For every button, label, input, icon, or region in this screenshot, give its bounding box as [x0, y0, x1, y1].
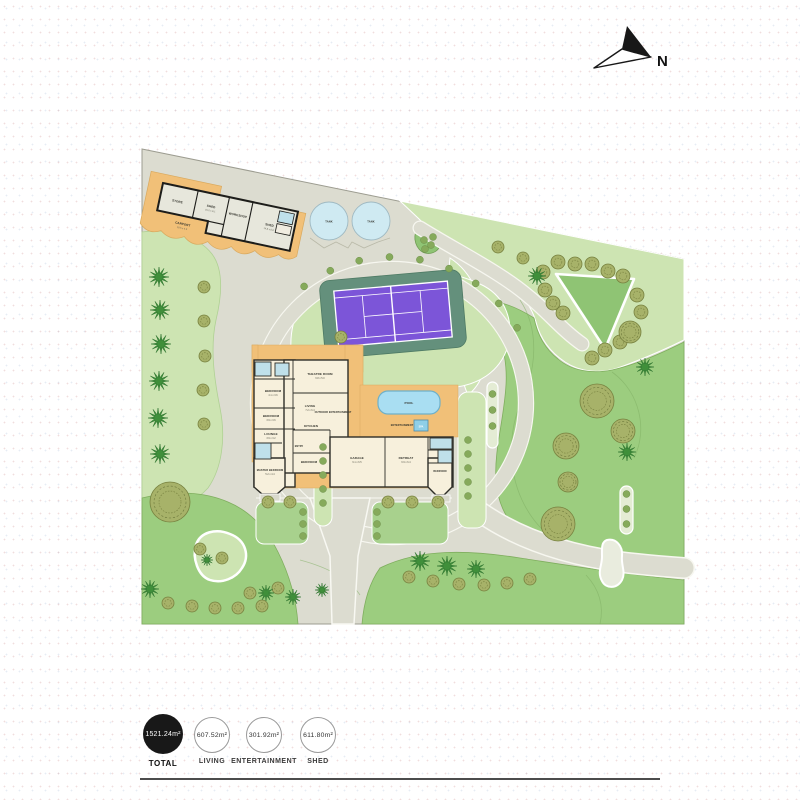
room-label: LOUNGE [264, 432, 277, 436]
tree-icon [619, 321, 641, 343]
tree-icon [335, 331, 347, 343]
north-label: N [657, 53, 668, 70]
shrub-icon [300, 521, 307, 528]
tree-icon [553, 433, 579, 459]
site-plan: STORE SHED 15.2 x 8.1 WORKSHOP SHED 14.8… [0, 0, 800, 800]
room-label: MASTER BEDROOM [257, 468, 284, 472]
tree-icon [209, 602, 221, 614]
shrub-icon [623, 491, 630, 498]
tree-icon [382, 496, 394, 508]
room-label: BEDROOM [433, 470, 446, 473]
room-label: BEDROOM [301, 460, 318, 464]
deck-label: OUTDOOR ENTERTAINMENT [315, 411, 352, 414]
tree-icon [186, 600, 198, 612]
tree-icon [244, 587, 256, 599]
deck-label: ENTERTAINMENT [391, 424, 414, 427]
tree-icon [585, 351, 599, 365]
room-label: LIVING [305, 404, 316, 408]
tree-icon [538, 283, 552, 297]
room-dims: 3.9 x 3.2 [266, 437, 276, 440]
tree-icon [256, 600, 268, 612]
room-label: THEATRE ROOM [307, 372, 333, 376]
tree-icon [262, 496, 274, 508]
shrub-icon [374, 509, 381, 516]
tree-icon [558, 472, 578, 492]
tree-icon [568, 257, 582, 271]
shrub-icon [320, 458, 327, 465]
shrub-icon [489, 407, 496, 414]
shrub-icon [465, 451, 472, 458]
shrub-icon [374, 521, 381, 528]
shrub-icon [489, 391, 496, 398]
shrub-icon [446, 265, 453, 272]
shrub-icon [301, 283, 308, 290]
tree-icon [427, 575, 439, 587]
tree-icon [580, 384, 614, 418]
room-dims: 9.1 x 6.5 [352, 461, 362, 464]
legend-label-shed: SHED [273, 758, 363, 765]
tree-icon [216, 552, 228, 564]
room-dims: 4.1 x 3.6 [268, 394, 278, 397]
shrub-icon [374, 533, 381, 540]
north-arrow: N [594, 26, 668, 70]
tree-icon [197, 384, 209, 396]
tree-icon [556, 306, 570, 320]
shrub-icon [356, 257, 363, 264]
shrub-icon [327, 267, 334, 274]
tree-icon [524, 573, 536, 585]
room-label: BEDROOM [265, 389, 282, 393]
shrub-icon [428, 242, 435, 249]
room-label: BEDROOM [263, 414, 280, 418]
legend-circle-shed: 611.80m² [300, 717, 336, 753]
tree-icon [199, 350, 211, 362]
spa-label: SPA [419, 426, 424, 429]
tree-icon [551, 255, 565, 269]
tree-icon [616, 269, 630, 283]
room-dims: 3.9 x 3.6 [266, 419, 276, 422]
room-label: GARAGE [350, 456, 364, 460]
tree-icon [232, 602, 244, 614]
tree-icon [598, 343, 612, 357]
shrub-icon [421, 237, 428, 244]
tree-icon [541, 507, 575, 541]
tank-label: TANK [325, 220, 332, 224]
room-dims: 6.9 x 6.4 [401, 461, 411, 464]
tree-icon [517, 252, 529, 264]
room-label: KITCHEN [304, 424, 318, 428]
shrub-icon [320, 500, 327, 507]
tank-label: TANK [367, 220, 374, 224]
shrub-icon [465, 465, 472, 472]
shrub-icon [465, 437, 472, 444]
shrub-icon [300, 509, 307, 516]
pool-label: POOL [405, 401, 414, 405]
shrub-icon [495, 300, 502, 307]
room-dims: 6.8 x 5.0 [315, 377, 325, 380]
shrub-icon [422, 246, 429, 253]
tree-icon [601, 264, 615, 278]
shrub-icon [623, 521, 630, 528]
tree-icon [198, 315, 210, 327]
shrub-icon [489, 423, 496, 430]
room-dims: 5.2 x 4.4 [265, 473, 275, 476]
tree-icon [492, 241, 504, 253]
tree-icon [501, 577, 513, 589]
shrub-icon [514, 324, 521, 331]
shrub-icon [472, 280, 479, 287]
tree-icon [272, 582, 284, 594]
room-label: ENTRY [295, 445, 304, 448]
shrub-icon [300, 533, 307, 540]
tree-icon [198, 281, 210, 293]
tree-icon [406, 496, 418, 508]
shrub-icon [465, 479, 472, 486]
shrub-icon [386, 254, 393, 261]
tree-icon [453, 578, 465, 590]
shrub-icon [430, 234, 437, 241]
tree-icon [150, 482, 190, 522]
tree-icon [432, 496, 444, 508]
tree-icon [162, 597, 174, 609]
tree-icon [198, 418, 210, 430]
sand-bed [600, 540, 624, 587]
shrub-icon [320, 486, 327, 493]
tree-icon [585, 257, 599, 271]
shrub-icon [465, 493, 472, 500]
room-label: RETREAT [399, 456, 414, 460]
tree-icon [611, 419, 635, 443]
shrub-icon [320, 444, 327, 451]
footer-divider [140, 778, 660, 780]
shrub-icon [320, 472, 327, 479]
shrub-icon [623, 506, 630, 513]
tree-icon [403, 571, 415, 583]
tree-icon [194, 543, 206, 555]
tree-icon [634, 305, 648, 319]
tree-icon [478, 579, 490, 591]
tree-icon [284, 496, 296, 508]
tree-icon [630, 288, 644, 302]
legend-item-shed: 611.80m² SHED [273, 714, 363, 765]
shrub-icon [416, 256, 423, 263]
